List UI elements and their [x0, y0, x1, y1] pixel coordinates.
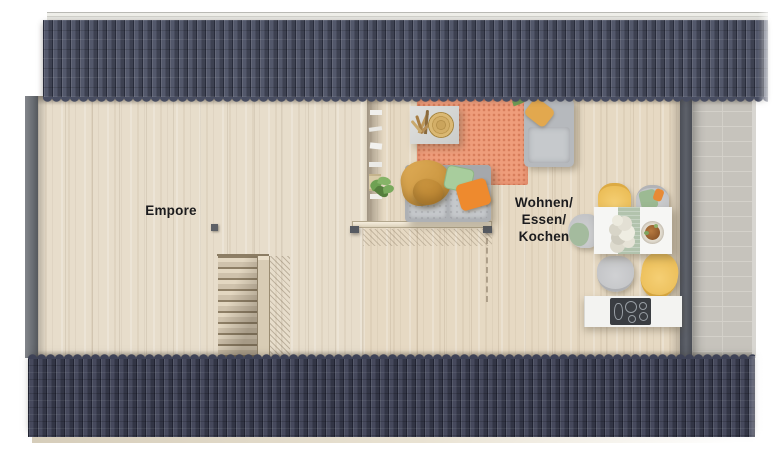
eave-strip: [32, 437, 737, 443]
sofa: [405, 165, 491, 222]
shelf-plant: [366, 176, 398, 208]
room-label-living-line2: Essen/: [504, 211, 584, 228]
roof-edge-fade-bottom: [748, 356, 775, 446]
staircase-top-edge: [217, 254, 269, 256]
wall-left: [25, 96, 38, 358]
staircase-railing-shadow: [270, 256, 290, 358]
room-label-living-line3: Kochen: [504, 228, 584, 245]
coffee-table: [410, 106, 459, 144]
gallery-railing: [352, 221, 492, 228]
staircase-shadow: [218, 256, 257, 358]
dining-chair-grey-bottom: [597, 256, 634, 292]
glass-railing-side: [486, 238, 490, 302]
dining-table: [594, 207, 672, 254]
railing-post: [211, 224, 218, 231]
staircase-side-wall: [257, 256, 270, 358]
roof-bottom: [28, 358, 755, 437]
table-runner: [618, 207, 640, 254]
room-label-living: Wohnen/ Essen/ Kochen: [504, 194, 584, 245]
room-label-empore-text: Empore: [145, 203, 196, 218]
cooktop: [610, 298, 651, 325]
roof-top: [43, 20, 768, 97]
room-label-living-line1: Wohnen/: [504, 194, 584, 211]
roof-edge-fade-top: [758, 12, 775, 107]
railing-shadow: [363, 229, 492, 246]
balcony-edge: [752, 96, 756, 358]
table-flowers: [612, 215, 623, 226]
balcony-terrace: [692, 96, 752, 358]
room-label-empore: Empore: [131, 203, 211, 218]
kitchen-counter: [584, 296, 682, 327]
floorplan-canvas: Empore Wohnen/ Essen/ Kochen: [0, 0, 775, 463]
floor-empore: [38, 96, 363, 358]
railing-bracket-right: [483, 226, 492, 233]
woven-tray: [428, 112, 454, 138]
chaise-lounge: [524, 99, 574, 167]
food-plate: [641, 221, 664, 244]
left-wall-shadow: [38, 96, 47, 358]
railing-bracket-left: [350, 226, 359, 233]
